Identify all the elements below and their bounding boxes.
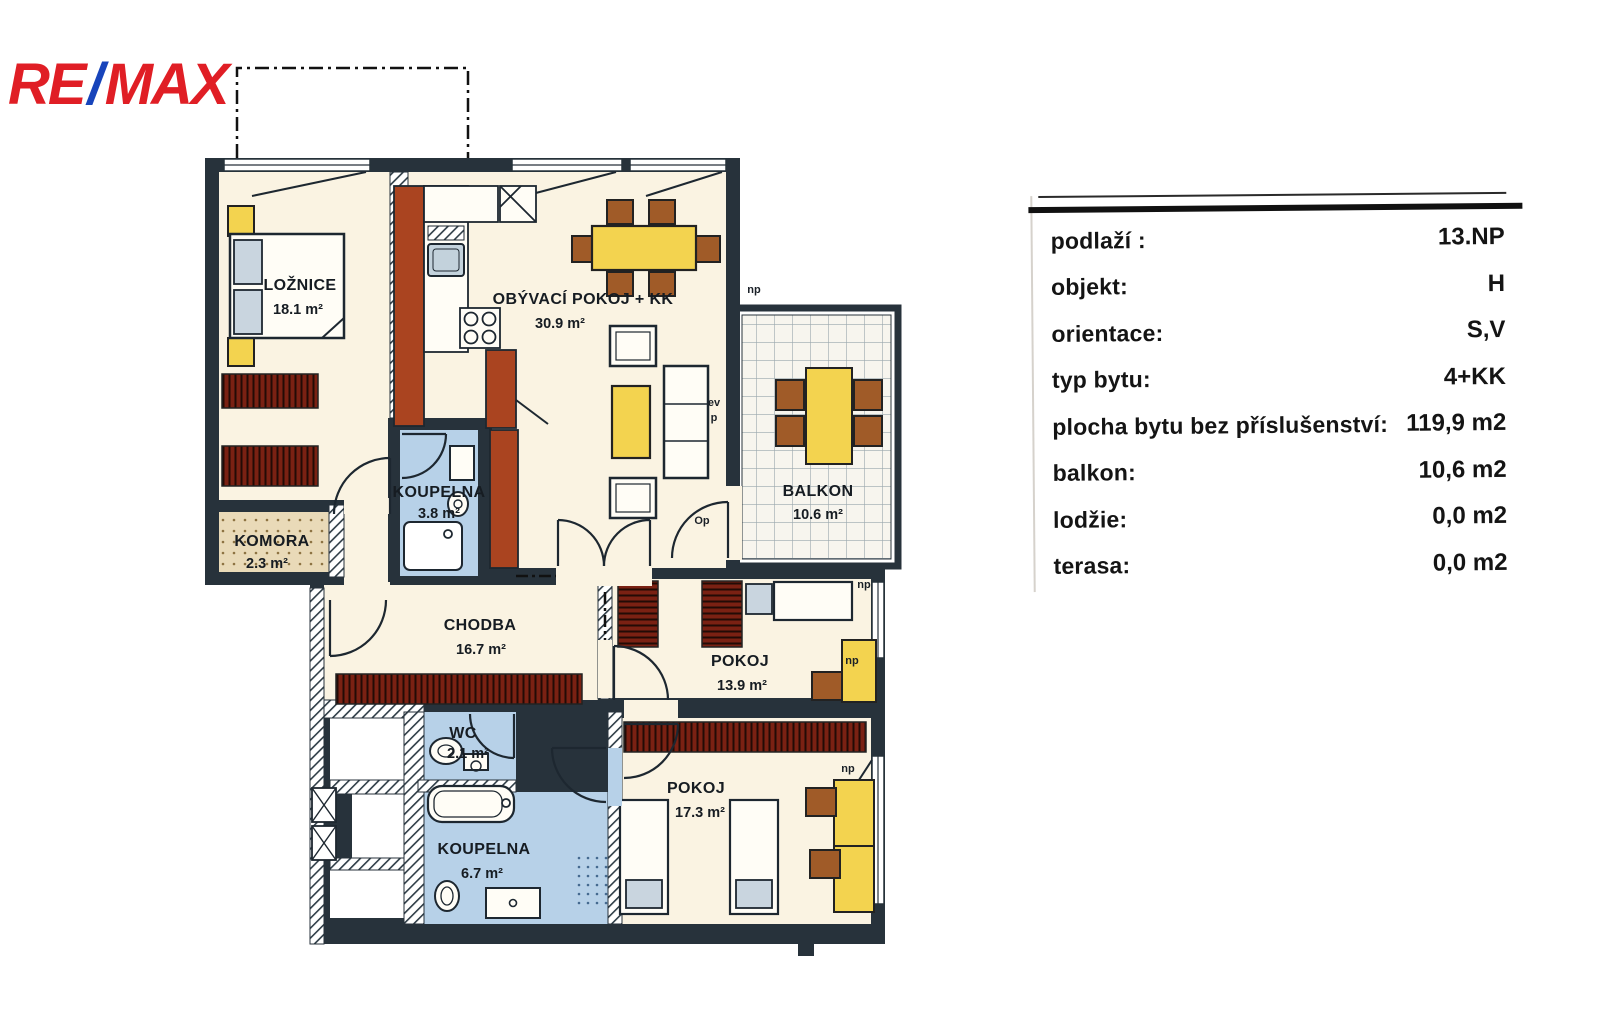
bed bbox=[774, 582, 852, 620]
room-label-balkon: BALKON bbox=[783, 483, 854, 500]
row-label: terasa: bbox=[1053, 552, 1130, 580]
annotation-np: np bbox=[747, 284, 761, 296]
row-label: orientace: bbox=[1051, 320, 1163, 348]
table-rows: podlaží : 13.NP objekt: H orientace: S,V… bbox=[1028, 214, 1511, 590]
sofa bbox=[664, 366, 708, 478]
room-area-obyvaci: 30.9 m² bbox=[535, 316, 585, 332]
shower-tray bbox=[404, 522, 462, 570]
wardrobe bbox=[222, 446, 318, 486]
room-area-balkon: 10.6 m² bbox=[793, 507, 843, 523]
boundary-dash-line bbox=[237, 68, 468, 158]
table-rule-thin bbox=[1038, 192, 1506, 198]
wall-stub bbox=[798, 944, 814, 956]
kitchen-partition bbox=[490, 430, 518, 568]
room-label-wc: WC bbox=[449, 725, 477, 742]
row-label: balkon: bbox=[1053, 459, 1136, 487]
room-area-loznice: 18.1 m² bbox=[273, 302, 323, 318]
table-row: terasa: 0,0 m2 bbox=[1031, 539, 1511, 590]
row-label: plocha bytu bez příslušenství: bbox=[1052, 411, 1388, 441]
dresser bbox=[228, 206, 254, 236]
kitchen-fridge bbox=[424, 186, 498, 222]
wardrobe bbox=[618, 581, 658, 647]
table-row: podlaží : 13.NP bbox=[1028, 214, 1508, 265]
pillow bbox=[234, 240, 262, 284]
row-value: 10,6 m2 bbox=[1418, 456, 1506, 485]
row-label: lodžie: bbox=[1053, 506, 1127, 534]
wardrobe bbox=[624, 722, 866, 752]
table-row: orientace: S,V bbox=[1029, 307, 1509, 358]
room-label-pokoj1: POKOJ bbox=[711, 653, 769, 670]
table-row: typ bytu: 4+KK bbox=[1030, 353, 1510, 404]
pillow bbox=[626, 880, 662, 908]
row-label: objekt: bbox=[1051, 273, 1128, 301]
annotation-np: np bbox=[845, 655, 859, 667]
room-area-pokoj2: 17.3 m² bbox=[675, 805, 725, 821]
room-label-chodba: CHODBA bbox=[444, 617, 517, 634]
row-value: 13.NP bbox=[1438, 223, 1505, 252]
room-area-wc: 2.1 m² bbox=[447, 746, 489, 762]
dining-table bbox=[592, 226, 696, 270]
chair bbox=[810, 850, 840, 878]
row-value: H bbox=[1488, 270, 1506, 298]
table-rule-thick bbox=[1028, 203, 1522, 213]
row-value: 119,9 m2 bbox=[1406, 409, 1506, 438]
kitchen-lower-cabinet bbox=[486, 350, 516, 428]
wardrobe bbox=[702, 581, 742, 647]
row-value: 0,0 m2 bbox=[1432, 502, 1507, 531]
dresser bbox=[228, 338, 254, 366]
pokoj2-furniture bbox=[620, 722, 874, 914]
chair bbox=[806, 788, 836, 816]
annotation-np: np bbox=[857, 579, 871, 591]
room-label-koupelna-big: KOUPELNA bbox=[438, 841, 531, 858]
shower-area bbox=[572, 856, 608, 908]
table-row: plocha bytu bez příslušenství: 119,9 m2 bbox=[1030, 400, 1510, 451]
table-row: objekt: H bbox=[1029, 260, 1509, 311]
annotation-np: np bbox=[841, 763, 855, 775]
closet-niche bbox=[352, 794, 404, 862]
row-value: 4+KK bbox=[1444, 363, 1506, 392]
page: RE/MAX bbox=[0, 0, 1600, 1018]
wardrobe bbox=[222, 374, 318, 408]
room-label-pokoj2: POKOJ bbox=[667, 780, 725, 797]
pillow bbox=[736, 880, 772, 908]
vanity-sink bbox=[486, 888, 540, 918]
closet-niche bbox=[330, 870, 404, 918]
room-area-komora: 2.3 m² bbox=[246, 556, 288, 572]
balcony bbox=[735, 308, 898, 566]
hall-wardrobe bbox=[336, 674, 582, 704]
chair bbox=[812, 672, 842, 700]
room-label-koupelna-small: KOUPELNA bbox=[393, 484, 486, 501]
annotation-p: p bbox=[711, 412, 718, 424]
table-row: balkon: 10,6 m2 bbox=[1031, 446, 1511, 497]
room-area-koupelna-small: 3.8 m² bbox=[418, 506, 460, 522]
apartment-info-table: podlaží : 13.NP objekt: H orientace: S,V… bbox=[1028, 184, 1512, 600]
toilet bbox=[435, 881, 459, 911]
coffee-table bbox=[612, 386, 650, 458]
annotation-ev: ev bbox=[708, 397, 721, 409]
pillow bbox=[234, 290, 262, 334]
room-area-pokoj1: 13.9 m² bbox=[717, 678, 767, 694]
pillow bbox=[746, 584, 772, 614]
kitchen-tall-cabinet bbox=[394, 186, 424, 426]
room-area-koupelna-big: 6.7 m² bbox=[461, 866, 503, 882]
room-label-komora: KOMORA bbox=[234, 533, 309, 550]
sink bbox=[450, 446, 474, 480]
row-label: typ bytu: bbox=[1052, 366, 1151, 394]
row-value: 0,0 m2 bbox=[1433, 549, 1508, 578]
annotation-op: Op bbox=[694, 515, 710, 527]
desk bbox=[842, 640, 876, 702]
passage-floor bbox=[344, 512, 390, 588]
closet-niche bbox=[330, 718, 404, 780]
room-label-obyvaci: OBÝVACÍ POKOJ + KK bbox=[493, 289, 674, 308]
room-label-loznice: LOŽNICE bbox=[263, 275, 336, 294]
row-value: S,V bbox=[1467, 316, 1506, 344]
balcony-table bbox=[806, 368, 852, 464]
dish-rack bbox=[428, 226, 464, 240]
row-label: podlaží : bbox=[1051, 227, 1146, 255]
room-area-chodba: 16.7 m² bbox=[456, 642, 506, 658]
table-row: lodžie: 0,0 m2 bbox=[1031, 493, 1511, 544]
